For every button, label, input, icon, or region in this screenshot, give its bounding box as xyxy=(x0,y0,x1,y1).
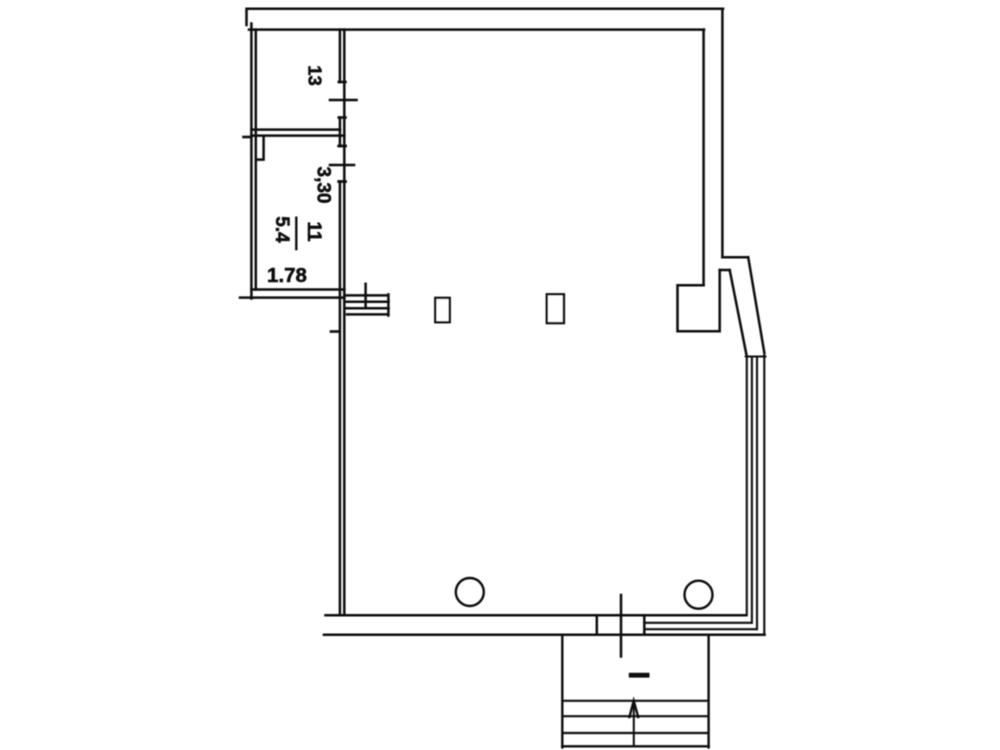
svg-text:11: 11 xyxy=(303,221,324,242)
svg-text:5.4: 5.4 xyxy=(271,216,292,243)
svg-text:13: 13 xyxy=(304,65,325,86)
svg-text:3,30: 3,30 xyxy=(312,167,333,204)
svg-text:1.78: 1.78 xyxy=(267,264,307,287)
